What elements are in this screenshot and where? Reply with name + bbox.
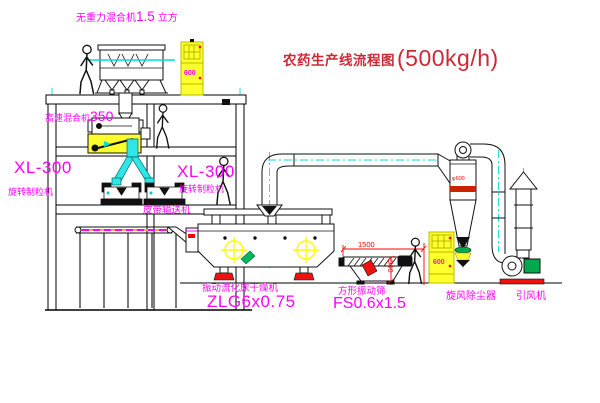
label-xl300-right: XL-300 xyxy=(177,163,235,180)
exhaust-duct xyxy=(257,154,452,216)
label-mixer-350: 高速混合机 350 xyxy=(45,109,113,123)
label-belt-conveyor: 皮带输送机 xyxy=(143,206,191,216)
title-capacity: (500kg/h) xyxy=(397,45,499,72)
sieve-length-dim: 1500 xyxy=(358,241,375,249)
control-cabinet-right xyxy=(429,232,454,283)
exhaust-stack xyxy=(510,172,537,250)
sieve-height-dim: 540 xyxy=(387,260,395,273)
label-gravity-mixer: 无重力混合机 1.5 立方 xyxy=(76,10,178,24)
belt-conveyor xyxy=(75,227,200,308)
diagram-title: 农药生产线流程图 (500kg/h) xyxy=(283,45,499,72)
person-figure xyxy=(80,45,94,93)
label-granulator-left: 旋转制粒机 xyxy=(8,188,53,197)
cabinet-right-display: 600 xyxy=(433,259,445,266)
granulator-left xyxy=(101,183,142,205)
fluid-bed-dryer xyxy=(186,209,334,280)
cabinet-top-display: 600 xyxy=(184,70,196,77)
person-figure xyxy=(157,105,169,148)
induced-draft-fan xyxy=(500,250,544,284)
process-flow-diagram: 农药生产线流程图 (500kg/h) 无重力混合机 1.5 立方 高速混合机 3… xyxy=(0,0,600,403)
label-sieve-model: FS0.6x1.5 xyxy=(333,296,406,312)
cyclone-diameter-text: φ600 xyxy=(452,177,465,183)
title-text: 农药生产线流程图 xyxy=(283,49,395,69)
label-dryer-model: ZLG6x0.75 xyxy=(207,293,296,310)
fan-stack-piping xyxy=(470,144,544,284)
label-fan: 引风机 xyxy=(516,292,546,302)
label-cyclone: 旋风除尘器 xyxy=(446,292,496,302)
control-cabinet-top xyxy=(181,39,203,95)
label-xl300-left: XL-300 xyxy=(14,159,72,176)
label-granulator-right: 旋转制粒机 xyxy=(179,185,224,194)
